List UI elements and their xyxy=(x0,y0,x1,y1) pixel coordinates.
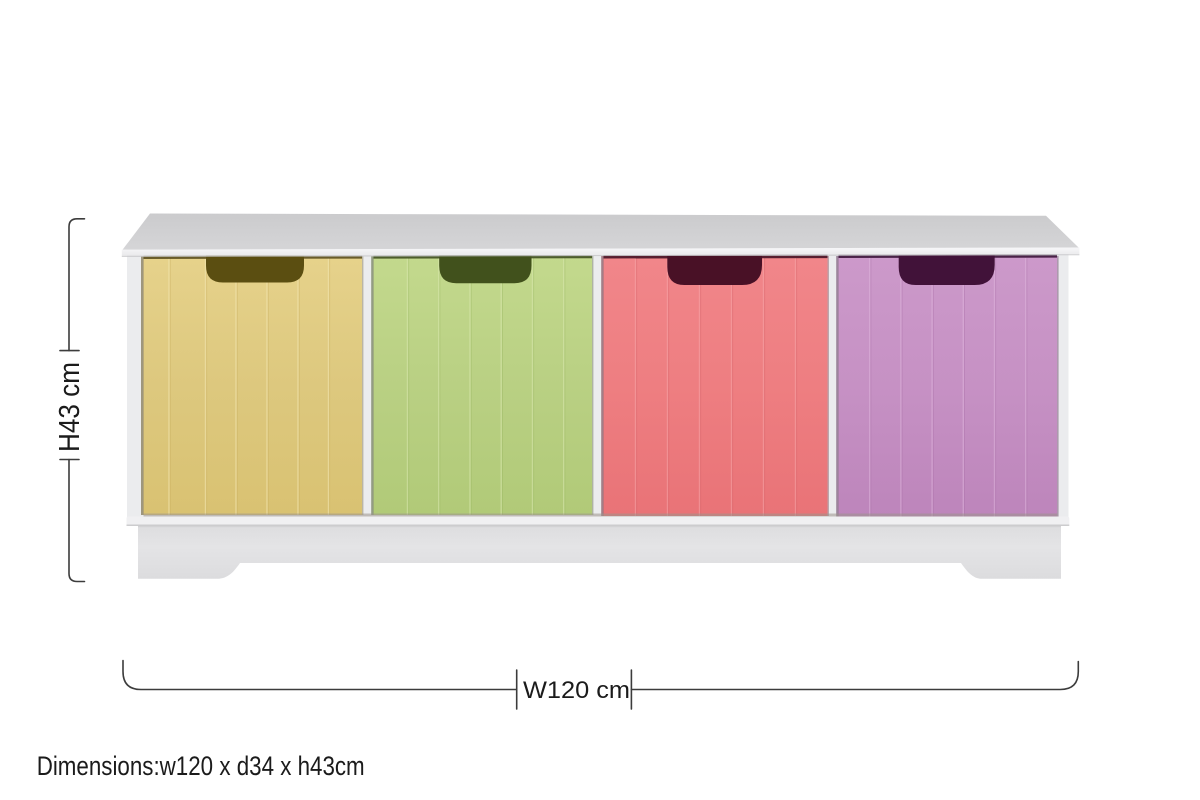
svg-text:H43 cm: H43 cm xyxy=(54,362,86,452)
svg-text:W120 cm: W120 cm xyxy=(523,677,630,704)
svg-text:Dimensions:w120 x d34 x h43cm: Dimensions:w120 x d34 x h43cm xyxy=(37,751,365,781)
